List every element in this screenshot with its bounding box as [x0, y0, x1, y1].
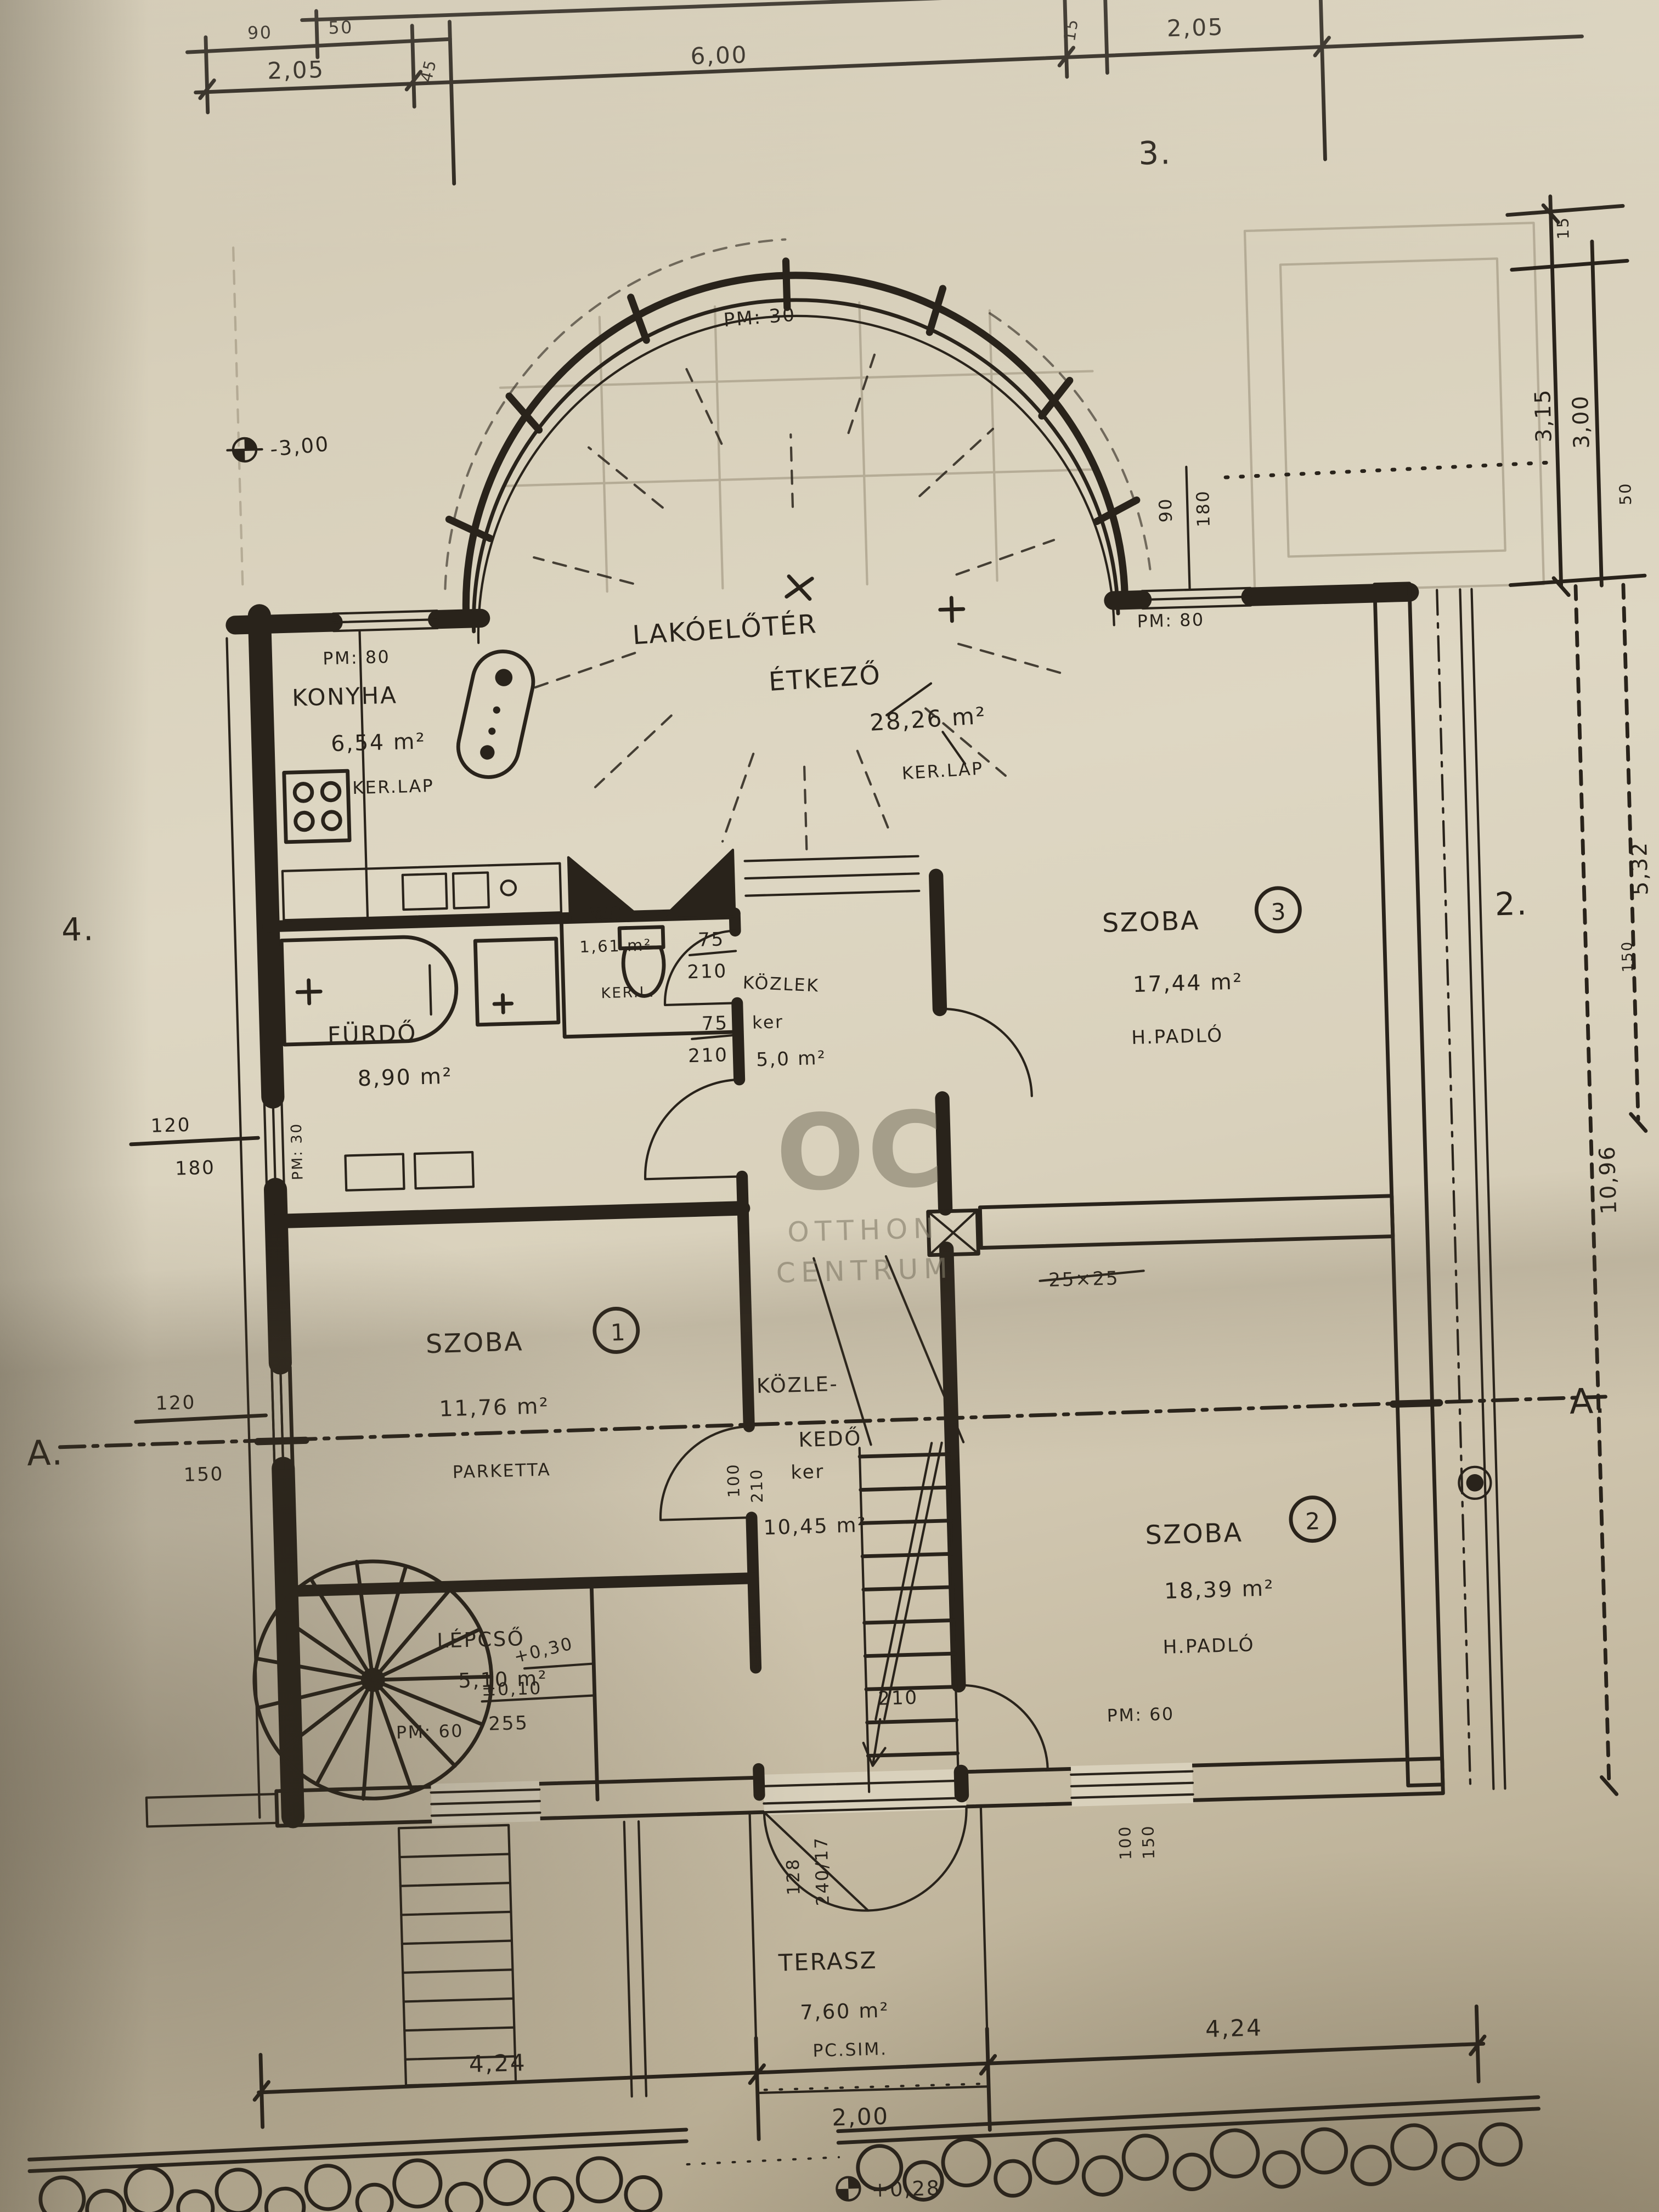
svg-text:SZOBA: SZOBA — [1102, 906, 1200, 939]
svg-text:210: 210 — [878, 1687, 918, 1710]
chimney-label: 25×25 — [1040, 1267, 1144, 1291]
svg-text:SZOBA: SZOBA — [425, 1327, 523, 1359]
bathroom-fixtures — [281, 927, 670, 1192]
svg-text:OC: OC — [775, 1088, 949, 1215]
svg-text:H.PADLÓ: H.PADLÓ — [1131, 1024, 1224, 1049]
svg-text:PM: 60: PM: 60 — [1107, 1705, 1175, 1726]
svg-text:8,90 m²: 8,90 m² — [357, 1064, 453, 1092]
section-a-left: A. — [26, 1432, 65, 1474]
svg-text:3,00: 3,00 — [1568, 394, 1595, 449]
floor-plan-drawing: 90 50 2,05 45 6,00 15 2,05 3. 4. 2. -3,0… — [0, 0, 1659, 2212]
floor-plan-photo: 90 50 2,05 45 6,00 15 2,05 3. 4. 2. -3,0… — [0, 0, 1659, 2212]
svg-text:ker: ker — [752, 1012, 785, 1033]
dim-2-05-left: 2,05 — [267, 56, 325, 84]
svg-text:120: 120 — [150, 1114, 191, 1137]
svg-text:5,0 m²: 5,0 m² — [756, 1047, 827, 1071]
svg-text:PM: 30: PM: 30 — [289, 1122, 307, 1181]
svg-text:240/17: 240/17 — [811, 1836, 833, 1906]
svg-text:WC: WC — [590, 904, 623, 925]
room-label-lepcso: LÉPCSŐ 5,10 m² PM: 60 +0,30 ±0,10 255 — [393, 1624, 596, 1743]
level-mark-entry: -3,00 — [227, 432, 331, 462]
svg-text:SZOBA: SZOBA — [1145, 1518, 1243, 1551]
svg-text:75: 75 — [697, 928, 725, 951]
svg-text:255: 255 — [488, 1712, 529, 1735]
svg-text:10,96: 10,96 — [1595, 1145, 1622, 1215]
svg-text:KONYHA: KONYHA — [292, 681, 398, 711]
svg-text:KER.LAP: KER.LAP — [901, 759, 984, 783]
dimension-right: 15 3,15 3,00 50 5,32 150 10,96 — [1500, 194, 1659, 1796]
svg-text:210: 210 — [687, 960, 727, 983]
dim-15: 15 — [1060, 17, 1082, 43]
watermark: OC OTTHON CENTRUM — [771, 1088, 954, 1289]
svg-text:128: 128 — [783, 1858, 804, 1895]
radial-rays — [526, 348, 1065, 864]
svg-text:11,76 m²: 11,76 m² — [439, 1393, 550, 1422]
svg-text:17,44 m²: 17,44 m² — [1132, 969, 1243, 997]
svg-text:120: 120 — [155, 1392, 196, 1415]
svg-text:100: 100 — [724, 1463, 743, 1498]
room-label-konyha: PM: 80 KONYHA 6,54 m² KER.LAP — [290, 630, 438, 926]
svg-text:210: 210 — [747, 1468, 767, 1503]
svg-text:50: 50 — [1616, 482, 1635, 505]
svg-text:PM: 60: PM: 60 — [396, 1722, 464, 1743]
svg-text:18,39 m²: 18,39 m² — [1164, 1576, 1274, 1604]
svg-text:15: 15 — [1553, 216, 1572, 240]
svg-text:CENTRUM: CENTRUM — [776, 1252, 953, 1289]
room-label-living: LAKÓELŐTÉR ÉTKEZŐ 28,26 m² KER.LAP — [631, 598, 990, 800]
svg-text:100: 100 — [1115, 1825, 1135, 1860]
svg-text:PM: 80: PM: 80 — [323, 647, 391, 669]
svg-text:-3,00: -3,00 — [269, 432, 330, 461]
svg-text:3: 3 — [1271, 898, 1288, 926]
ghost-lines — [233, 211, 1544, 620]
svg-text:90: 90 — [1156, 497, 1176, 522]
svg-text:180: 180 — [1193, 489, 1214, 527]
svg-text:±0,10: ±0,10 — [482, 1679, 543, 1700]
svg-text:6,54 m²: 6,54 m² — [331, 729, 427, 757]
svg-text:KÖZLEK: KÖZLEK — [742, 972, 820, 996]
svg-text:FÜRDŐ: FÜRDŐ — [327, 1019, 417, 1049]
section-a-right: A. — [1569, 1380, 1607, 1422]
sheet-number-4: 4. — [61, 910, 95, 949]
svg-text:PC.SIM.: PC.SIM. — [812, 2039, 888, 2061]
sheet-number-3: 3. — [1138, 134, 1172, 172]
svg-text:2,00: 2,00 — [832, 2103, 890, 2131]
svg-text:KER.L.: KER.L. — [601, 984, 655, 1002]
svg-text:2: 2 — [1305, 1508, 1322, 1535]
svg-text:150: 150 — [1619, 940, 1637, 973]
svg-text:KÖZLE-: KÖZLE- — [756, 1372, 839, 1398]
svg-text:KEDŐ: KEDŐ — [798, 1426, 862, 1452]
dim-50: 50 — [328, 18, 353, 38]
svg-text:10,45 m²: 10,45 m² — [763, 1513, 867, 1539]
svg-text:TERASZ: TERASZ — [777, 1946, 877, 1976]
svg-text:LAKÓELŐTÉR: LAKÓELŐTÉR — [631, 608, 818, 651]
svg-text:5,32: 5,32 — [1627, 841, 1654, 896]
svg-text:1,61 m²: 1,61 m² — [579, 935, 652, 956]
shrub-planters — [29, 2097, 1541, 2212]
room-label-kozlek-upper: 75 210 KÖZLEK ker 5,0 m² — [686, 970, 827, 1073]
svg-text:150: 150 — [1138, 1824, 1158, 1859]
svg-text:ker: ker — [791, 1461, 825, 1484]
room-label-szoba1: SZOBA 1 11,76 m² PARKETTA — [425, 1308, 642, 1483]
room-label-furdo: FÜRDŐ 8,90 m² — [326, 965, 453, 1092]
svg-text:3,15: 3,15 — [1530, 388, 1557, 443]
svg-text:1: 1 — [610, 1319, 627, 1346]
svg-text:4,24: 4,24 — [469, 2049, 527, 2078]
dim-2-05-right: 2,05 — [1166, 13, 1224, 42]
svg-text:150: 150 — [183, 1463, 224, 1486]
dim-90: 90 — [247, 23, 273, 43]
svg-text:ÉTKEZŐ: ÉTKEZŐ — [768, 659, 882, 697]
svg-text:H.PADLÓ: H.PADLÓ — [1163, 1633, 1255, 1658]
svg-text:7,60 m²: 7,60 m² — [800, 1998, 890, 2024]
svg-text:PARKETTA: PARKETTA — [452, 1460, 551, 1482]
svg-text:28,26 m²: 28,26 m² — [869, 702, 988, 736]
svg-text:180: 180 — [175, 1157, 216, 1180]
svg-text:4,24: 4,24 — [1205, 2014, 1263, 2042]
dimension-top: 90 50 2,05 45 6,00 15 2,05 — [187, 0, 1585, 191]
roof-overhang-lines — [1226, 462, 1588, 1796]
dim-6-00: 6,00 — [690, 41, 748, 70]
svg-text:PM: 80: PM: 80 — [1137, 610, 1205, 631]
sheet-number-2: 2. — [1494, 885, 1528, 923]
svg-text:75: 75 — [701, 1012, 729, 1035]
boiler-capsule — [453, 646, 539, 783]
dim-45: 45 — [416, 57, 440, 84]
svg-text:OTTHON: OTTHON — [787, 1212, 940, 1249]
svg-text:210: 210 — [688, 1044, 729, 1067]
